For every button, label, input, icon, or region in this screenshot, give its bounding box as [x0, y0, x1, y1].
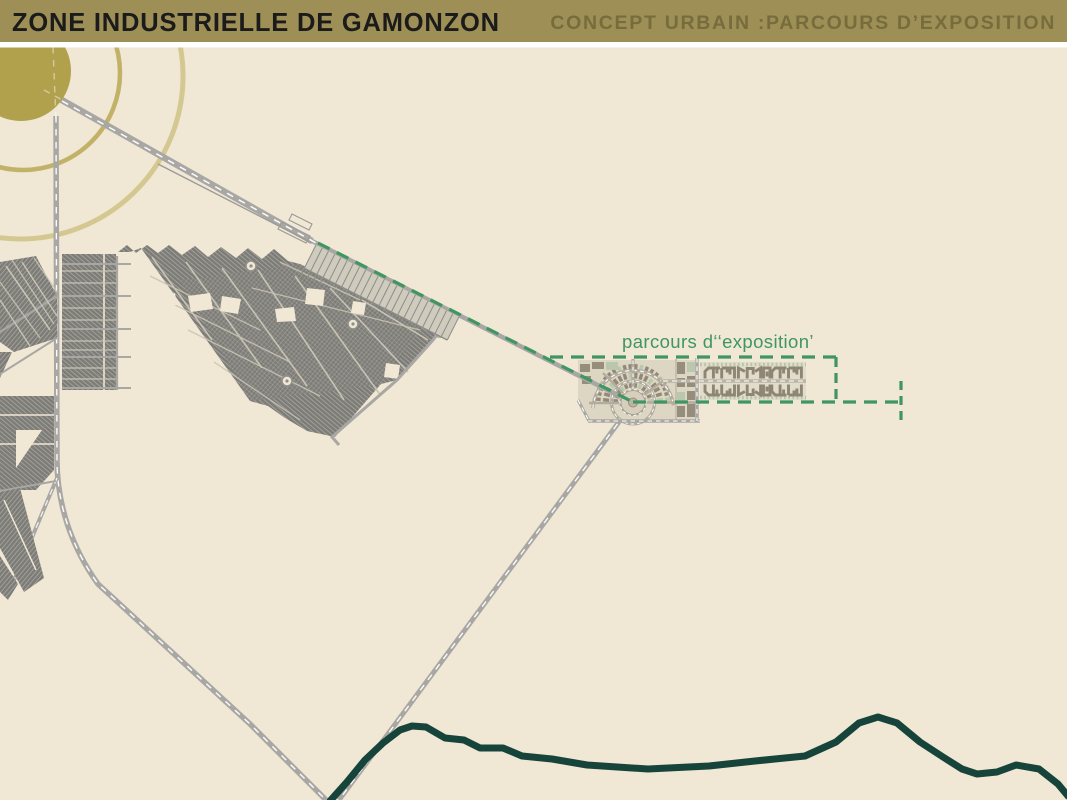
svg-text:parcours d‘‘exposition’: parcours d‘‘exposition’ [622, 331, 814, 352]
svg-text:ZONE INDUSTRIELLE DE GAMONZON: ZONE INDUSTRIELLE DE GAMONZON [12, 9, 500, 37]
svg-text:CONCEPT URBAIN :PARCOURS D’EXP: CONCEPT URBAIN :PARCOURS D’EXPOSITION [550, 12, 1056, 34]
